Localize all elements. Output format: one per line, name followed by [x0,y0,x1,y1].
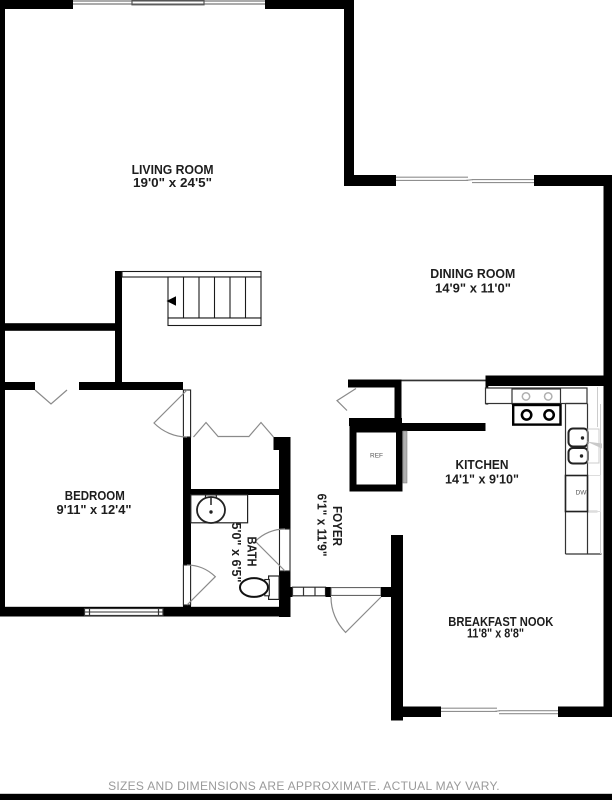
svg-text:14'9" x 11'0": 14'9" x 11'0" [435,281,511,296]
svg-text:DINING ROOM: DINING ROOM [430,266,515,281]
svg-text:BEDROOM: BEDROOM [65,488,125,503]
svg-text:11'8" x 8'8": 11'8" x 8'8" [467,626,524,641]
svg-text:SIZES AND DIMENSIONS ARE APPRO: SIZES AND DIMENSIONS ARE APPROXIMATE. AC… [108,779,500,793]
svg-text:KITCHEN: KITCHEN [456,457,509,472]
svg-text:6'1" x 11'9": 6'1" x 11'9" [315,494,330,557]
svg-text:BATH: BATH [245,537,260,567]
svg-text:14'1" x 9'10": 14'1" x 9'10" [445,472,519,487]
svg-text:DW: DW [576,490,588,497]
svg-text:5'0" x 6'5": 5'0" x 6'5" [229,523,244,583]
svg-text:9'11" x 12'4": 9'11" x 12'4" [57,502,132,517]
svg-text:FOYER: FOYER [330,506,345,547]
svg-text:19'0" x 24'5": 19'0" x 24'5" [133,175,212,190]
svg-text:REF: REF [370,453,383,460]
